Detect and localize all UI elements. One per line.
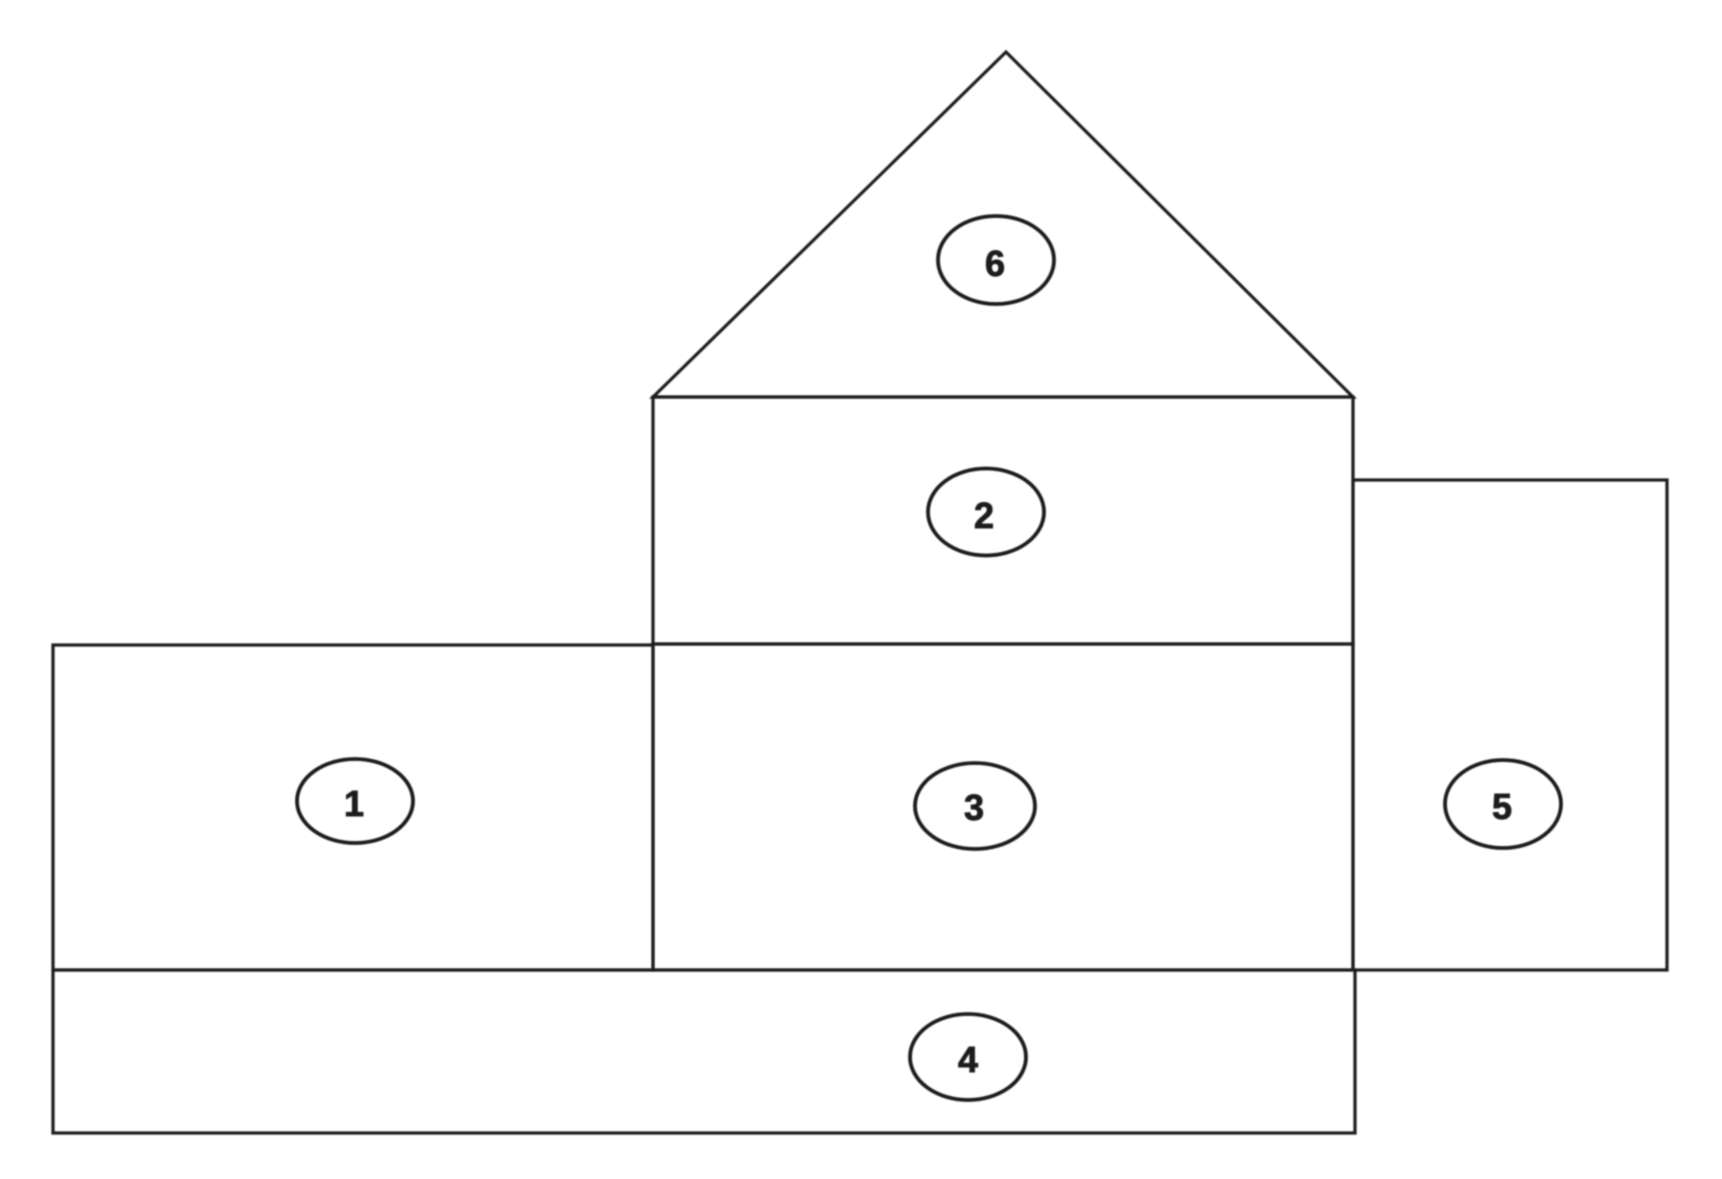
svg-text:3: 3	[964, 787, 984, 828]
svg-text:1: 1	[344, 783, 364, 824]
svg-text:4: 4	[958, 1039, 978, 1080]
svg-text:2: 2	[974, 495, 994, 536]
svg-text:5: 5	[1492, 786, 1512, 827]
svg-text:6: 6	[985, 243, 1005, 284]
